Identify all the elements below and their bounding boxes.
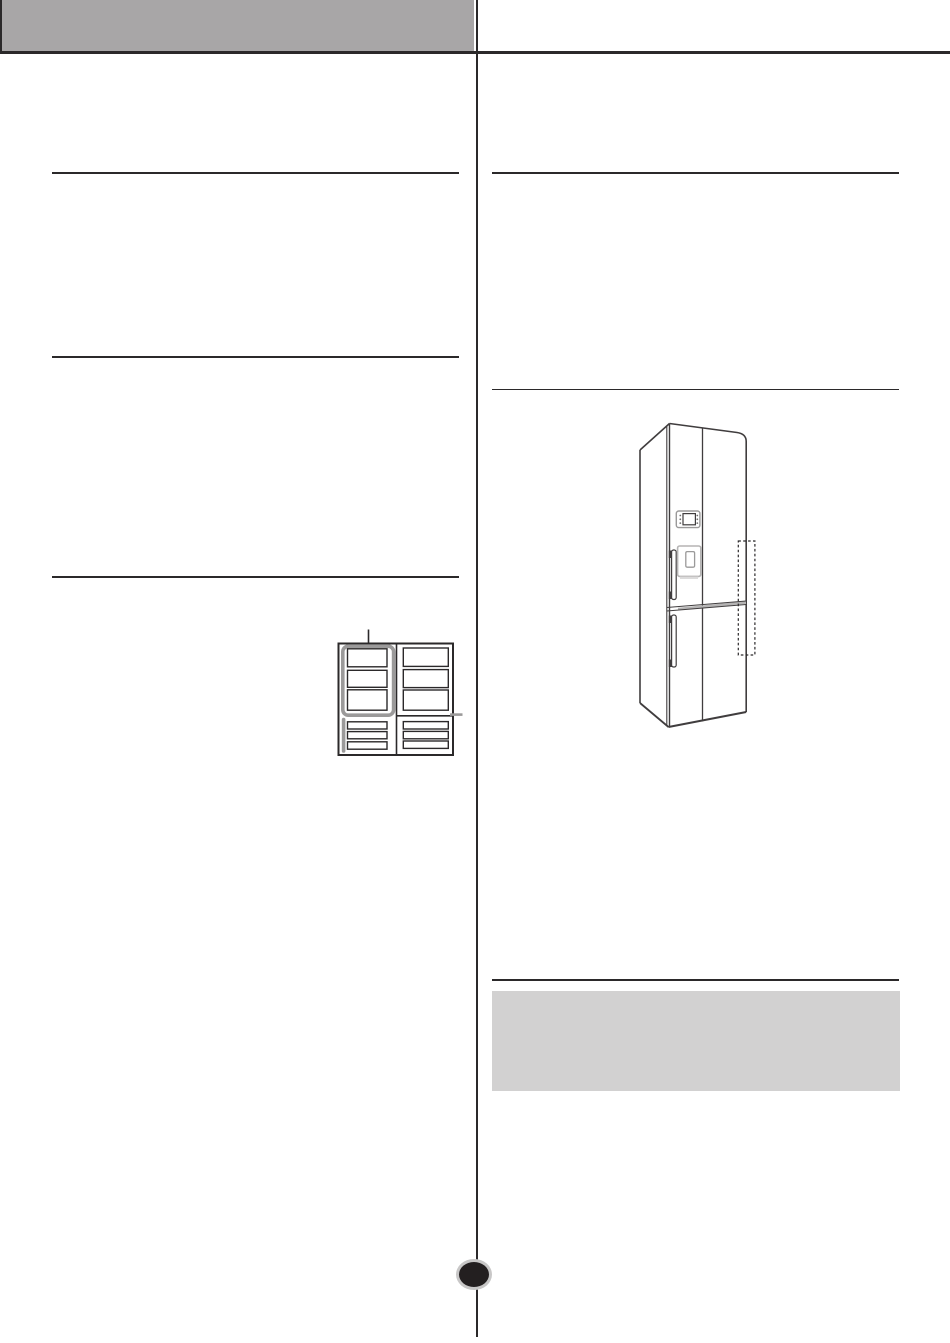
column-divider (476, 0, 478, 1337)
refrigerator-illustration (612, 415, 777, 735)
panel-button-icon (679, 515, 681, 517)
freezer-compartment-diagram (330, 622, 475, 762)
drawer (403, 722, 448, 729)
note-box (492, 991, 900, 1091)
shelf (403, 670, 448, 688)
panel-button-icon (696, 522, 698, 524)
right-section-rule-2 (492, 389, 899, 390)
drawer (348, 742, 388, 749)
page-number-dot (456, 1259, 492, 1290)
panel-button-icon (679, 522, 681, 524)
drawer (348, 722, 388, 729)
panel-button-icon (696, 515, 698, 517)
shelf (348, 690, 388, 710)
panel-button-icon (679, 518, 681, 520)
left-section-rule-3 (52, 576, 459, 578)
shelf (403, 648, 448, 666)
shelf (348, 649, 388, 667)
fridge-top-side-edge (640, 424, 670, 451)
lower-door-handle (672, 615, 677, 667)
left-section-rule-1 (52, 172, 459, 174)
left-section-rule-2 (52, 356, 459, 358)
shelf (348, 670, 388, 687)
drawer (403, 741, 448, 748)
fridge-bottom-edge (669, 712, 747, 727)
control-panel-display (683, 514, 695, 525)
header-rule (0, 51, 950, 54)
header-bar (0, 0, 474, 52)
fridge-base-side-edge (640, 703, 669, 727)
shelf (403, 690, 448, 710)
right-section-rule-3 (492, 979, 899, 981)
fridge-top-edge (670, 424, 747, 442)
manual-page (0, 0, 950, 1343)
dispenser (678, 546, 701, 576)
upper-door-handle (672, 550, 677, 600)
drawer (348, 732, 388, 739)
panel-button-icon (696, 518, 698, 520)
right-section-rule-1 (492, 172, 899, 174)
drawer (403, 731, 448, 738)
